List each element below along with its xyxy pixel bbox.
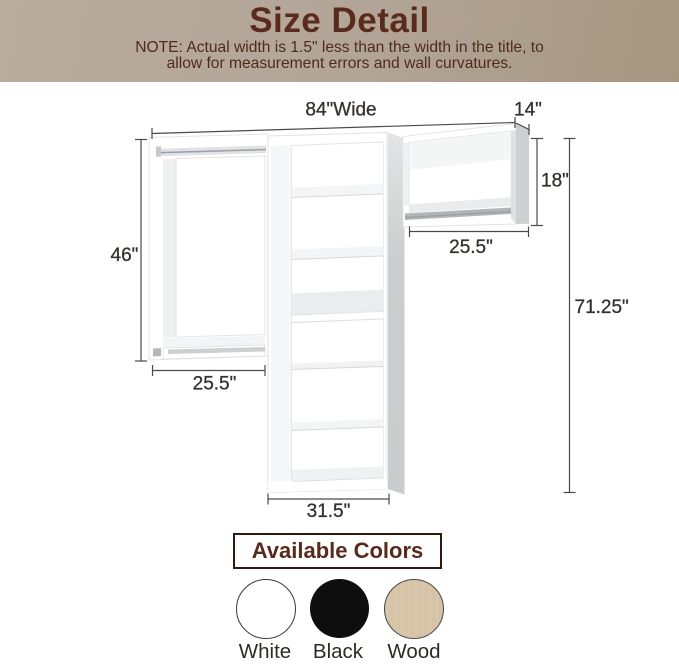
svg-text:31.5": 31.5": [307, 501, 351, 522]
svg-text:25.5": 25.5": [449, 237, 493, 258]
svg-text:84"Wide: 84"Wide: [305, 100, 376, 121]
svg-text:14": 14": [514, 100, 542, 121]
svg-text:25.5": 25.5": [193, 374, 237, 395]
svg-text:71.25": 71.25": [575, 297, 629, 318]
svg-text:18": 18": [541, 171, 569, 192]
svg-text:46": 46": [111, 245, 139, 266]
